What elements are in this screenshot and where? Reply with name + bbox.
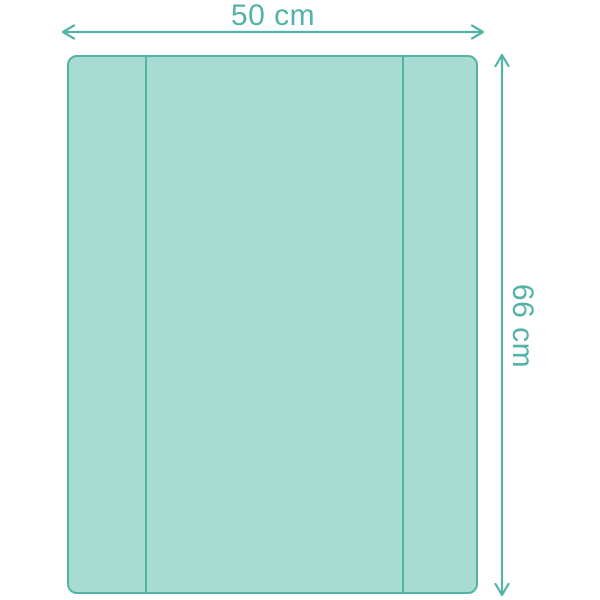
height-dimension-label: 66 cm <box>505 284 539 368</box>
diagram-canvas: 50 cm 66 cm <box>0 0 600 600</box>
width-dimension-label: 50 cm <box>231 0 315 33</box>
mat-outline <box>67 55 478 594</box>
mat-seam-right <box>402 57 404 592</box>
mat-seam-left <box>145 57 147 592</box>
